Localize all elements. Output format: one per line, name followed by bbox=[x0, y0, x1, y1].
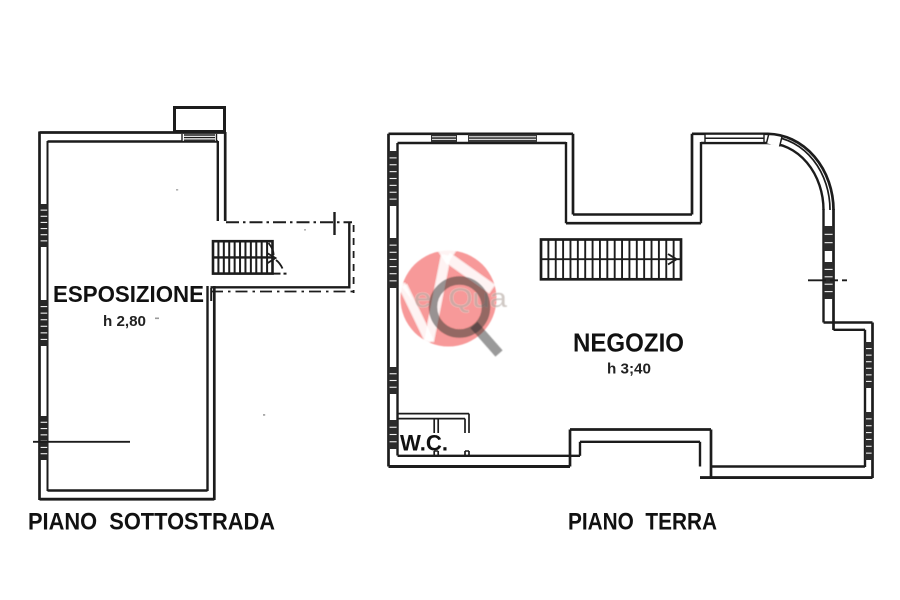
svg-text:h 3;40: h 3;40 bbox=[607, 361, 651, 378]
svg-text:PIANO TERRA: PIANO TERRA bbox=[568, 509, 717, 536]
svg-text:e Qua: e Qua bbox=[414, 283, 508, 313]
svg-text:PIANO SOTTOSTRADA: PIANO SOTTOSTRADA bbox=[28, 509, 275, 536]
svg-text:ESPOSIZIONE: ESPOSIZIONE bbox=[53, 281, 204, 307]
svg-text:NEGOZIO: NEGOZIO bbox=[573, 328, 684, 358]
svg-text:h 2,80: h 2,80 bbox=[103, 313, 146, 330]
svg-text:W.C.: W.C. bbox=[400, 431, 448, 456]
